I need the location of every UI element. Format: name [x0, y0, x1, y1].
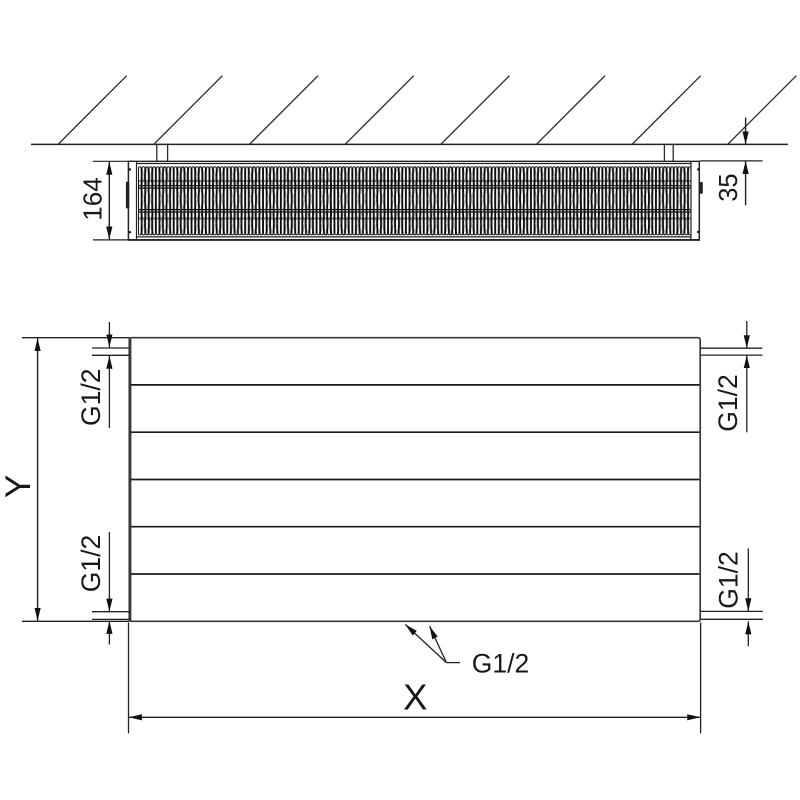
- svg-text:G1/2: G1/2: [713, 374, 743, 431]
- svg-text:G1/2: G1/2: [472, 648, 529, 678]
- svg-text:G1/2: G1/2: [713, 551, 743, 608]
- svg-text:164: 164: [78, 177, 108, 220]
- svg-text:G1/2: G1/2: [76, 369, 106, 426]
- svg-text:X: X: [403, 677, 427, 718]
- svg-text:Y: Y: [0, 475, 38, 498]
- svg-text:G1/2: G1/2: [76, 535, 106, 592]
- svg-text:35: 35: [715, 173, 743, 201]
